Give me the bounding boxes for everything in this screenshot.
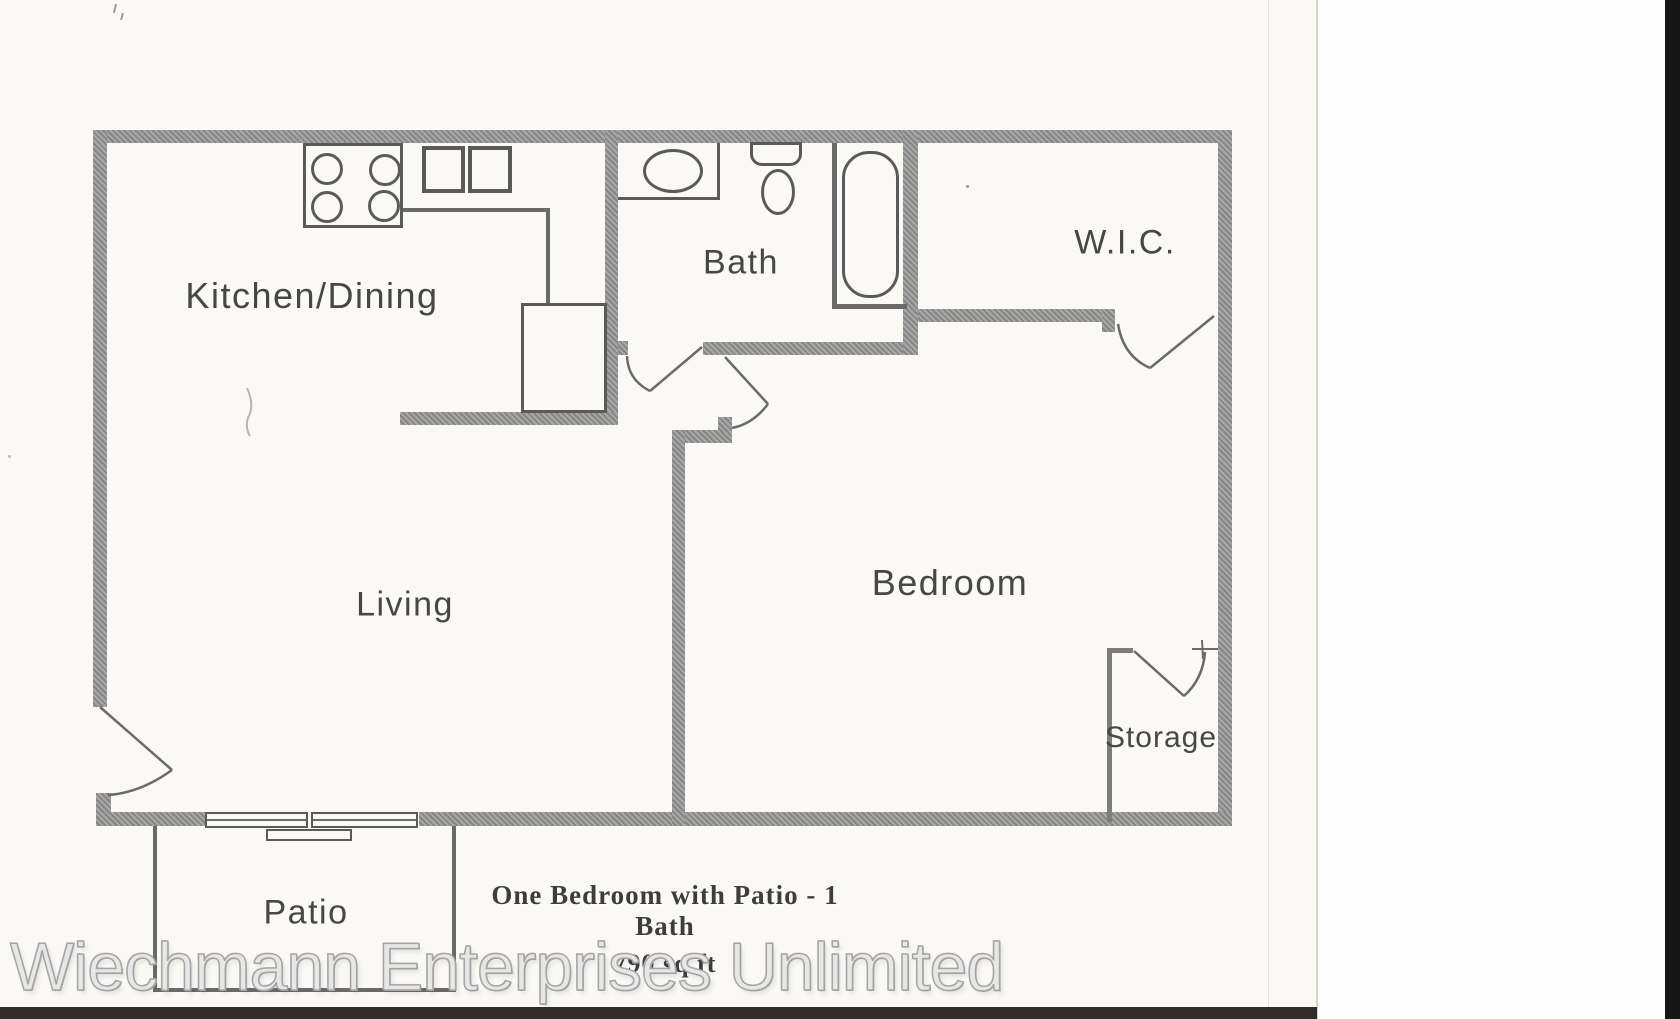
kitchen-pantry-closet bbox=[521, 303, 607, 413]
floor-plan-scan: Kitchen/Dining Bath W.I.C. Living Bedroo… bbox=[0, 0, 1680, 1019]
tub-enclosure-bottom-line bbox=[832, 304, 907, 309]
kitchen-counter-line bbox=[403, 208, 550, 212]
paper-edge-line bbox=[1316, 0, 1318, 1019]
wall-storage-top-stub bbox=[1107, 648, 1133, 653]
kitchen-sink-basin bbox=[468, 146, 512, 193]
room-label-living: Living bbox=[356, 586, 454, 625]
toilet-tank-icon bbox=[750, 142, 802, 166]
scan-black-edge-bottom bbox=[0, 1007, 1317, 1019]
bath-sink-icon bbox=[643, 149, 703, 193]
scanner-background bbox=[1317, 0, 1665, 1019]
wall-hall-door-jamb-left bbox=[618, 341, 628, 355]
room-label-bedroom: Bedroom bbox=[872, 562, 1029, 604]
kitchen-sink-basin bbox=[422, 146, 465, 193]
wall-wic-door-jamb bbox=[1102, 309, 1115, 332]
stove-burner-icon bbox=[369, 154, 401, 186]
wall-right bbox=[1218, 130, 1232, 826]
sliding-door-panel bbox=[311, 812, 418, 828]
watermark-text: Wiechmann Enterprises Unlimited bbox=[10, 928, 1003, 1006]
room-label-wic: W.I.C. bbox=[1074, 224, 1176, 263]
stove-burner-icon bbox=[311, 153, 343, 185]
wall-bath-bottom bbox=[703, 342, 918, 355]
wall-bedroom-door-jamb bbox=[718, 417, 732, 432]
scan-speck bbox=[966, 185, 969, 188]
room-label-storage: Storage bbox=[1105, 721, 1217, 755]
room-label-kitchen-dining: Kitchen/Dining bbox=[185, 275, 438, 317]
stove-burner-icon bbox=[368, 190, 400, 222]
sliding-door-lower-track bbox=[266, 829, 352, 841]
bathtub-icon bbox=[842, 151, 899, 298]
sliding-door-panel bbox=[205, 812, 308, 828]
wall-top bbox=[93, 130, 1232, 143]
wall-bottom-left-segment bbox=[96, 812, 206, 826]
wall-kitchen-bottom bbox=[400, 412, 618, 425]
wall-bedroom-left bbox=[672, 430, 685, 826]
stove-burner-icon bbox=[311, 191, 343, 223]
wall-tub-right bbox=[903, 130, 918, 355]
kitchen-counter-line bbox=[546, 208, 550, 306]
room-label-bath: Bath bbox=[703, 244, 779, 283]
room-label-patio: Patio bbox=[264, 894, 349, 933]
wall-wic-bottom bbox=[918, 309, 1112, 322]
tub-enclosure-left-line bbox=[832, 143, 837, 309]
scan-black-edge-right bbox=[1665, 0, 1680, 1019]
scan-speck bbox=[8, 455, 11, 458]
paper-shadow-line bbox=[1268, 0, 1269, 1019]
toilet-bowl-icon bbox=[761, 169, 795, 215]
wall-left bbox=[93, 130, 107, 707]
